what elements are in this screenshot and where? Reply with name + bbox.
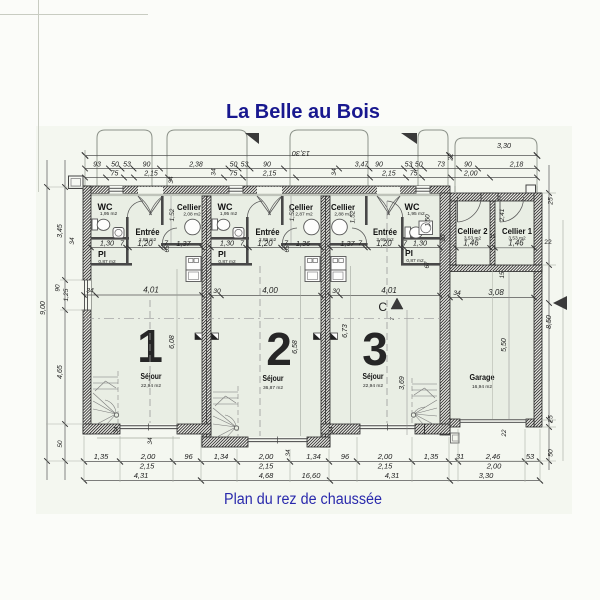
svg-text:73: 73 bbox=[437, 162, 445, 169]
svg-text:53: 53 bbox=[526, 452, 535, 461]
svg-text:22: 22 bbox=[448, 153, 455, 162]
svg-text:Séjour: Séjour bbox=[363, 372, 385, 381]
svg-text:90: 90 bbox=[263, 162, 271, 169]
svg-text:1,95 m2: 1,95 m2 bbox=[100, 211, 118, 217]
svg-text:1,30: 1,30 bbox=[100, 239, 114, 248]
svg-text:C: C bbox=[378, 300, 387, 314]
svg-text:Cellier: Cellier bbox=[177, 202, 202, 212]
svg-text:75: 75 bbox=[230, 171, 238, 178]
svg-text:2,15: 2,15 bbox=[262, 171, 277, 178]
svg-text:15: 15 bbox=[500, 271, 506, 278]
svg-text:1,34: 1,34 bbox=[214, 452, 229, 461]
svg-text:1,35: 1,35 bbox=[424, 452, 439, 461]
svg-text:67: 67 bbox=[424, 261, 431, 269]
svg-text:4,01: 4,01 bbox=[381, 286, 397, 295]
svg-text:50: 50 bbox=[548, 449, 555, 457]
svg-text:22: 22 bbox=[501, 429, 508, 438]
svg-text:1,37: 1,37 bbox=[340, 239, 355, 248]
svg-text:16,60: 16,60 bbox=[302, 471, 322, 480]
svg-text:1,52: 1,52 bbox=[350, 210, 357, 223]
svg-text:Séjour: Séjour bbox=[263, 374, 285, 383]
svg-text:1,20: 1,20 bbox=[137, 239, 153, 248]
svg-text:9,00: 9,00 bbox=[40, 301, 47, 315]
svg-text:Entrée: Entrée bbox=[256, 227, 280, 237]
svg-text:2,00: 2,00 bbox=[486, 462, 502, 471]
svg-text:3: 3 bbox=[362, 323, 388, 375]
svg-text:Garage: Garage bbox=[470, 372, 495, 382]
svg-text:50: 50 bbox=[415, 162, 423, 169]
svg-text:2,41: 2,41 bbox=[499, 208, 506, 222]
svg-text:96: 96 bbox=[184, 452, 193, 461]
svg-text:4,68: 4,68 bbox=[259, 471, 274, 480]
svg-text:1,35: 1,35 bbox=[94, 452, 109, 461]
svg-text:2,15: 2,15 bbox=[139, 462, 155, 471]
svg-text:22,94 m2: 22,94 m2 bbox=[141, 383, 161, 389]
svg-text:1,95 m2: 1,95 m2 bbox=[407, 211, 425, 217]
svg-text:2: 2 bbox=[266, 323, 292, 375]
svg-text:2,00: 2,00 bbox=[258, 452, 274, 461]
svg-text:1,46: 1,46 bbox=[463, 239, 479, 248]
svg-text:8,50: 8,50 bbox=[546, 315, 553, 329]
svg-text:2,08 m2: 2,08 m2 bbox=[183, 212, 201, 218]
svg-text:3,08: 3,08 bbox=[488, 288, 504, 297]
svg-text:90: 90 bbox=[55, 284, 62, 292]
svg-text:1,20: 1,20 bbox=[257, 239, 273, 248]
svg-text:1,20: 1,20 bbox=[376, 239, 392, 248]
svg-text:5,50: 5,50 bbox=[501, 338, 508, 352]
svg-text:90: 90 bbox=[464, 162, 472, 169]
svg-text:2,87 m2: 2,87 m2 bbox=[295, 212, 313, 218]
svg-text:Entrée: Entrée bbox=[373, 227, 397, 237]
svg-text:2,15: 2,15 bbox=[143, 171, 158, 178]
svg-text:2,00: 2,00 bbox=[140, 452, 156, 461]
svg-text:0,87 m2: 0,87 m2 bbox=[98, 259, 116, 265]
svg-text:96: 96 bbox=[341, 452, 350, 461]
svg-text:22,94 m2: 22,94 m2 bbox=[363, 383, 383, 389]
svg-text:34: 34 bbox=[328, 426, 335, 434]
svg-text:3,69: 3,69 bbox=[399, 376, 406, 390]
svg-text:Séjour: Séjour bbox=[141, 372, 163, 381]
svg-text:13,30: 13,30 bbox=[292, 149, 310, 158]
svg-text:1,30: 1,30 bbox=[220, 239, 234, 248]
svg-text:93: 93 bbox=[93, 162, 101, 169]
svg-text:1,37: 1,37 bbox=[176, 239, 191, 248]
svg-text:1,30: 1,30 bbox=[413, 239, 427, 248]
svg-text:31: 31 bbox=[456, 452, 464, 461]
svg-text:36,87 m2: 36,87 m2 bbox=[263, 385, 283, 391]
svg-text:53: 53 bbox=[405, 162, 413, 169]
svg-text:2,38: 2,38 bbox=[188, 162, 203, 169]
svg-text:3,30: 3,30 bbox=[479, 471, 494, 480]
svg-text:4,01: 4,01 bbox=[143, 286, 159, 295]
svg-text:34: 34 bbox=[113, 426, 120, 434]
svg-text:1,36: 1,36 bbox=[296, 239, 311, 248]
svg-text:Plan du rez de chaussée: Plan du rez de chaussée bbox=[224, 491, 382, 508]
svg-text:La Belle au Bois: La Belle au Bois bbox=[226, 101, 380, 123]
svg-text:90: 90 bbox=[375, 162, 383, 169]
svg-text:1,52: 1,52 bbox=[289, 208, 296, 221]
svg-text:50: 50 bbox=[230, 162, 238, 169]
svg-text:53: 53 bbox=[241, 162, 249, 169]
svg-text:34: 34 bbox=[69, 237, 76, 245]
svg-text:Cellier 2: Cellier 2 bbox=[458, 226, 488, 236]
svg-text:4,31: 4,31 bbox=[385, 471, 400, 480]
svg-text:3,45: 3,45 bbox=[57, 224, 64, 238]
svg-text:1,46: 1,46 bbox=[508, 239, 524, 248]
svg-text:34: 34 bbox=[285, 449, 292, 457]
svg-text:34: 34 bbox=[168, 176, 175, 184]
svg-text:Pl: Pl bbox=[98, 249, 106, 259]
svg-text:25: 25 bbox=[548, 415, 555, 424]
svg-text:2,00: 2,00 bbox=[377, 452, 393, 461]
svg-text:Entrée: Entrée bbox=[136, 227, 160, 237]
svg-text:2,18: 2,18 bbox=[509, 162, 524, 169]
svg-text:4,00: 4,00 bbox=[262, 286, 278, 295]
svg-text:1,50: 1,50 bbox=[425, 214, 432, 227]
svg-text:65: 65 bbox=[284, 245, 291, 253]
svg-text:1,25: 1,25 bbox=[63, 288, 70, 301]
svg-text:1,52: 1,52 bbox=[169, 208, 176, 221]
svg-text:6,58: 6,58 bbox=[292, 340, 299, 354]
svg-text:6,08: 6,08 bbox=[169, 335, 176, 349]
svg-text:Cellier: Cellier bbox=[331, 202, 356, 212]
svg-text:30: 30 bbox=[332, 288, 340, 295]
svg-text:2,15: 2,15 bbox=[377, 462, 393, 471]
svg-text:34: 34 bbox=[331, 168, 338, 176]
svg-text:90: 90 bbox=[143, 162, 151, 169]
svg-text:34: 34 bbox=[86, 288, 94, 295]
svg-text:1,34: 1,34 bbox=[306, 452, 321, 461]
svg-text:50: 50 bbox=[111, 162, 119, 169]
svg-text:0,87 m2: 0,87 m2 bbox=[406, 258, 424, 264]
svg-text:2,00: 2,00 bbox=[463, 171, 478, 178]
svg-text:75: 75 bbox=[111, 171, 119, 178]
svg-text:22: 22 bbox=[544, 239, 552, 246]
svg-text:2,15: 2,15 bbox=[381, 171, 396, 178]
svg-text:3,30: 3,30 bbox=[497, 141, 511, 150]
svg-text:4,31: 4,31 bbox=[134, 471, 149, 480]
svg-text:75: 75 bbox=[410, 171, 418, 178]
svg-text:34: 34 bbox=[453, 290, 461, 297]
svg-text:0,87 m2: 0,87 m2 bbox=[218, 259, 236, 265]
svg-text:Cellier 1: Cellier 1 bbox=[502, 226, 532, 236]
svg-text:16,94 m2: 16,94 m2 bbox=[472, 384, 492, 390]
svg-text:34: 34 bbox=[147, 437, 154, 445]
svg-text:4,65: 4,65 bbox=[57, 365, 64, 379]
svg-text:1,95 m2: 1,95 m2 bbox=[220, 211, 238, 217]
svg-text:30: 30 bbox=[213, 288, 221, 295]
svg-text:65: 65 bbox=[164, 245, 171, 253]
svg-text:3,47: 3,47 bbox=[355, 162, 370, 169]
svg-text:15: 15 bbox=[489, 234, 496, 240]
svg-text:Pl: Pl bbox=[218, 249, 226, 259]
svg-text:34: 34 bbox=[211, 168, 218, 176]
svg-text:2,15: 2,15 bbox=[258, 462, 274, 471]
svg-text:6,73: 6,73 bbox=[342, 324, 349, 338]
svg-text:30: 30 bbox=[440, 234, 447, 242]
svg-text:25: 25 bbox=[548, 197, 555, 206]
svg-text:50: 50 bbox=[57, 440, 64, 448]
svg-text:2,46: 2,46 bbox=[485, 452, 501, 461]
svg-text:53: 53 bbox=[123, 162, 131, 169]
